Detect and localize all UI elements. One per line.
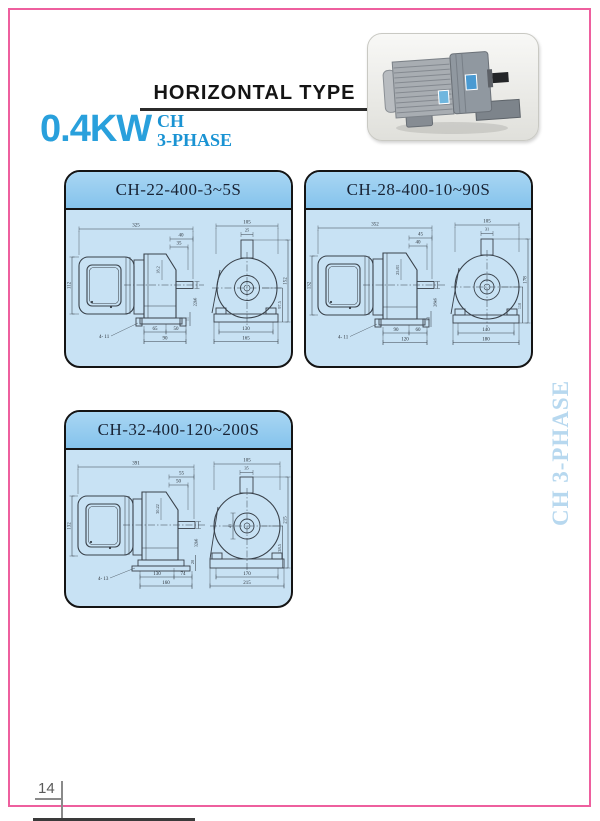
dim-label: 22k6 <box>193 297 198 306</box>
dim-label: 178 <box>524 276 529 284</box>
dim-label: 130 <box>242 327 250 332</box>
side-tab-label: CH 3-PHASE <box>548 378 574 528</box>
dim-label: 110 <box>517 303 522 309</box>
dim-label: 352 <box>371 223 379 228</box>
dim-label: 4- 11 <box>338 336 349 341</box>
dim-label: 105 <box>243 459 251 464</box>
dim-label: 50 <box>174 327 180 332</box>
dim-label: 31 <box>485 227 489 232</box>
dim-label: 35 <box>177 242 183 247</box>
dim-label: 391 <box>132 462 140 467</box>
page-number: 14 <box>38 780 55 797</box>
catalog-page: HORIZONTAL TYPE 0.4KW CH 3-PHASE <box>0 0 600 821</box>
product-photo-card <box>367 33 539 141</box>
dim-label: 60 <box>416 328 422 333</box>
panel-ch32: CH-32-400-120~200S <box>64 410 293 608</box>
power-rating: 0.4KW <box>40 108 151 151</box>
panel-ch22: CH-22-400-3~5S <box>64 170 293 368</box>
front-view-drawing <box>210 477 284 572</box>
dim-label: 65 <box>153 327 159 332</box>
dim-label: 215 <box>284 516 289 524</box>
dim-label: 152 <box>284 277 289 285</box>
dim-label: 55 <box>179 472 185 477</box>
gear-motor-photo <box>368 34 536 138</box>
dim-label: 30.22 <box>155 504 160 514</box>
dim-label: 138.5 <box>277 544 282 554</box>
dim-label: 4- 11 <box>99 335 110 340</box>
dim-label: 90 <box>394 328 400 333</box>
series-name: CH <box>157 112 232 131</box>
dim-label: 140 <box>482 328 490 333</box>
dimension-annotations: 325 40 35 18.2 112 22k6 65 50 90 <box>68 221 291 345</box>
series-phase: 3-PHASE <box>157 131 232 150</box>
dim-label: 160 <box>162 581 170 586</box>
dim-label: 40 <box>179 234 185 239</box>
dim-label: 45 <box>418 233 424 238</box>
dim-label: 50 <box>176 480 182 485</box>
panel-ch28: CH-28-400-10~90S <box>304 170 533 368</box>
dim-label: 20 <box>190 560 195 564</box>
panel-drawing-area: 391 55 50 30.22 132 32k6 130 74 160 <box>66 450 291 608</box>
panel-drawing-area: 352 45 40 25.83 132 28k6 90 60 120 <box>306 210 531 368</box>
dim-label: 90 <box>163 337 169 342</box>
dim-label: 170 <box>243 572 251 577</box>
page-number-rule <box>61 781 63 821</box>
panel-title: CH-32-400-120~200S <box>66 412 291 450</box>
dim-label: 215 <box>243 581 251 586</box>
technical-drawing-ch28: 352 45 40 25.83 132 28k6 90 60 120 <box>306 210 531 368</box>
page-number-underline <box>35 798 63 800</box>
dim-label: 4- 13 <box>98 577 109 582</box>
dim-label: 18.2 <box>156 266 161 274</box>
dim-label: 40 <box>416 241 422 246</box>
dim-label: 165 <box>242 337 250 342</box>
dim-label: 325 <box>132 224 140 229</box>
side-view-drawing <box>79 254 204 326</box>
dim-label: 11 <box>185 317 190 321</box>
dim-label: 105 <box>243 221 251 226</box>
dim-label: 105 <box>483 220 491 225</box>
dim-label: 180 <box>482 338 490 343</box>
dim-label: 40 <box>228 524 233 528</box>
dimension-annotations: 391 55 50 30.22 132 32k6 130 74 160 <box>68 459 291 590</box>
dim-label: 132 <box>308 281 313 289</box>
dimension-annotations: 352 45 40 25.83 132 28k6 90 60 120 <box>308 220 531 346</box>
dim-label: 130 <box>153 572 161 577</box>
dim-label: 28k6 <box>433 297 438 306</box>
panel-title: CH-22-400-3~5S <box>66 172 291 210</box>
dim-label: 132 <box>68 522 73 530</box>
dim-label: 35 <box>244 466 248 471</box>
dim-label: 25 <box>245 228 249 233</box>
dim-label: 120 <box>401 338 409 343</box>
dim-label: 25.83 <box>395 265 400 275</box>
side-view-drawing <box>78 492 206 571</box>
dim-label: 74 <box>181 572 187 577</box>
front-view-drawing <box>212 240 282 326</box>
dim-label: 32k6 <box>194 538 199 547</box>
panel-title: CH-28-400-10~90S <box>306 172 531 210</box>
technical-drawing-ch32: 391 55 50 30.22 132 32k6 130 74 160 <box>66 450 291 608</box>
dim-label: 97.5 <box>277 301 282 309</box>
technical-drawing-ch22: 325 40 35 18.2 112 22k6 65 50 90 <box>66 210 291 368</box>
series-label: CH 3-PHASE <box>157 112 232 151</box>
page-title: HORIZONTAL TYPE <box>140 82 369 111</box>
dim-label: 112 <box>68 281 73 289</box>
front-view-drawing <box>451 239 523 327</box>
dim-label: 13 <box>426 317 431 321</box>
panel-drawing-area: 325 40 35 18.2 112 22k6 65 50 90 <box>66 210 291 368</box>
side-view-drawing <box>318 253 446 327</box>
